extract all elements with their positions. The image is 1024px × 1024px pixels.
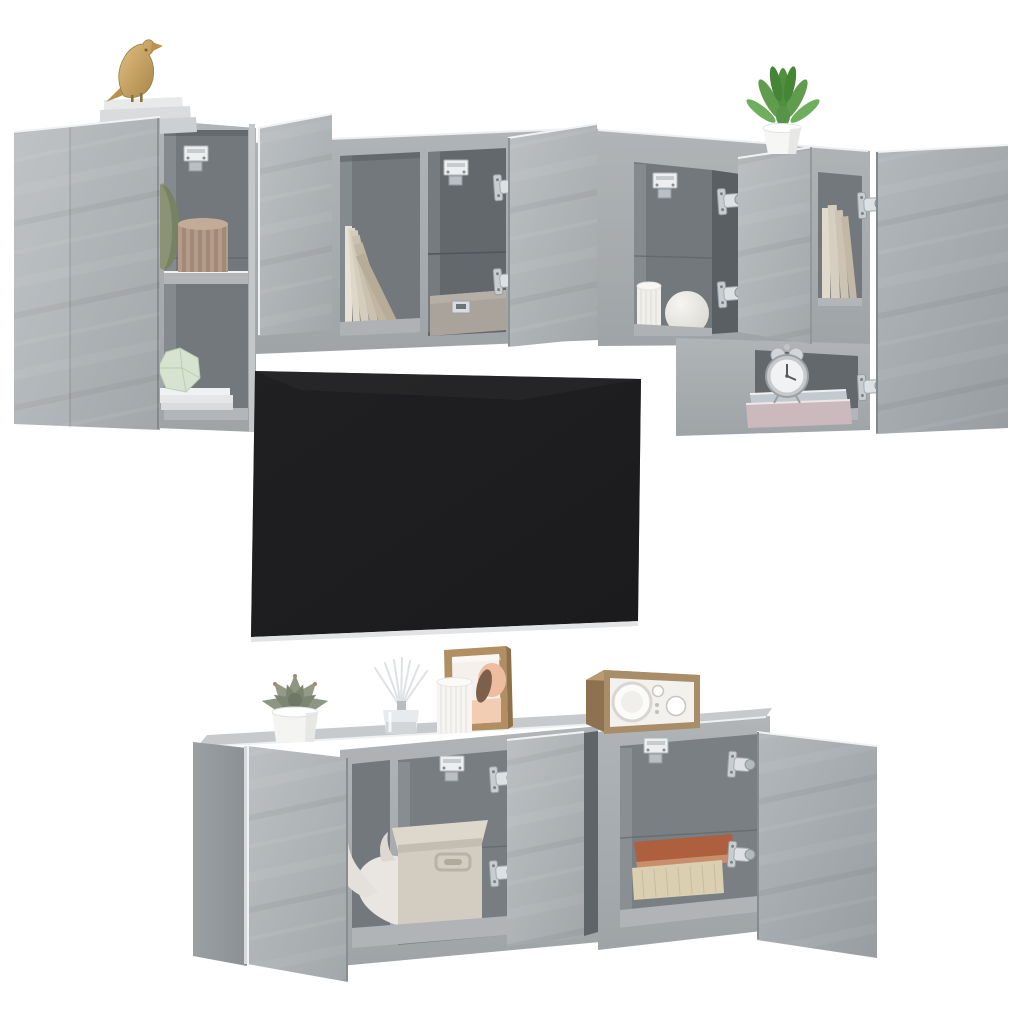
tv xyxy=(251,371,641,642)
cabinet-door-open xyxy=(493,124,597,347)
cabinet-door-open xyxy=(247,746,348,982)
cabinet-side-panel xyxy=(193,742,247,966)
terracotta-cream-books xyxy=(632,834,736,900)
ribbed-vase xyxy=(437,678,472,734)
tv-screen xyxy=(251,371,641,637)
cabinet-wide-centre xyxy=(256,114,598,354)
pleated-vase xyxy=(178,218,228,272)
cabinet-door-open xyxy=(258,114,332,336)
cabinet-tall-left xyxy=(14,40,256,432)
reed-diffuser xyxy=(375,658,427,734)
radio xyxy=(586,670,700,734)
cabinet-bottom-left xyxy=(193,713,604,982)
fabric-storage-box xyxy=(392,820,488,927)
cabinet-tall-right-door xyxy=(857,145,1008,434)
cabinet-door-open xyxy=(14,117,160,430)
gift-box xyxy=(430,290,506,336)
potted-plant xyxy=(744,65,823,154)
gold-bird-figurine xyxy=(106,40,163,102)
media-wall-photo: Product photo: 6-piece wall-mounted TV m… xyxy=(0,0,1024,1024)
cabinet-bottom-right xyxy=(586,670,877,958)
shelf xyxy=(164,272,248,284)
product-image: Product photo: 6-piece wall-mounted TV m… xyxy=(0,0,1024,1024)
